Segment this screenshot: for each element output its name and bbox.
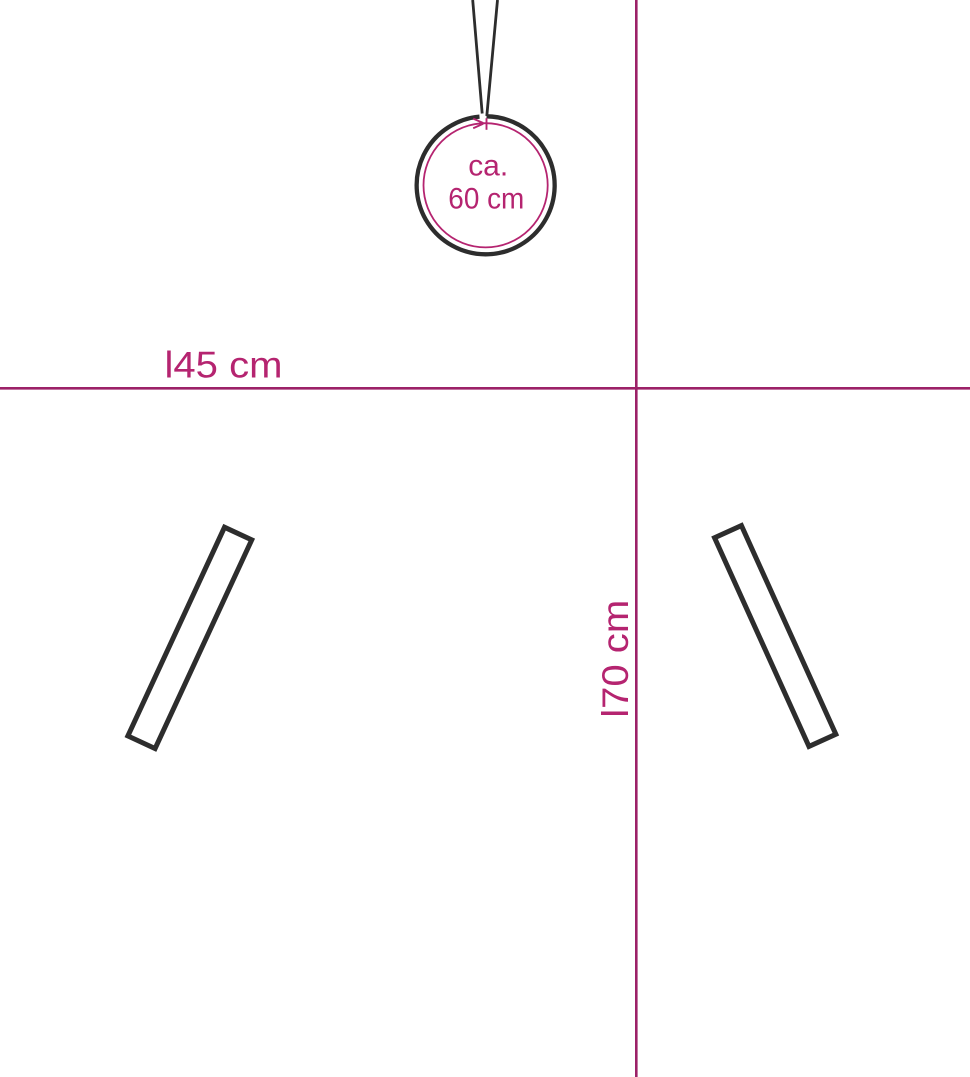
svg-text:l70 cm: l70 cm bbox=[595, 600, 636, 718]
svg-text:ca.: ca. bbox=[468, 149, 508, 182]
svg-text:60 cm: 60 cm bbox=[448, 183, 524, 216]
svg-text:l45 cm: l45 cm bbox=[165, 345, 283, 386]
